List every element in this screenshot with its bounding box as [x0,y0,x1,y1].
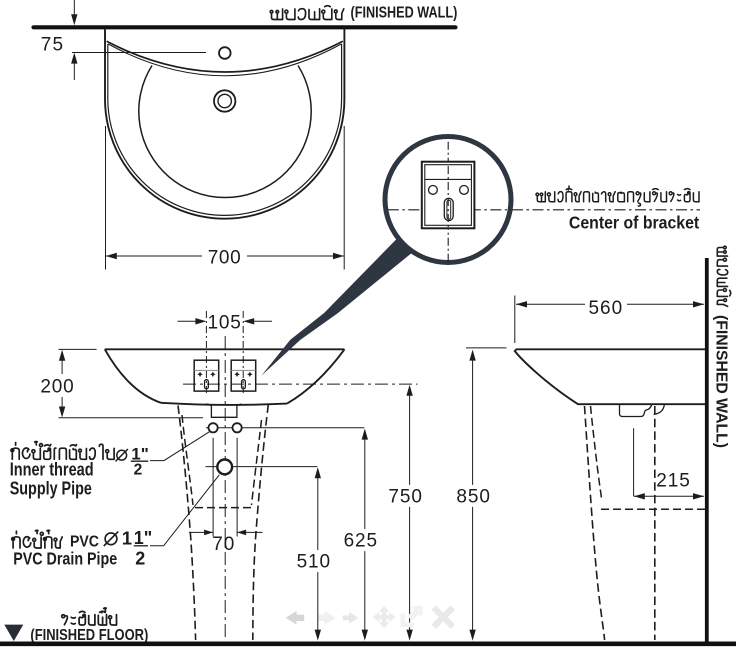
svg-text:(FINISHED FLOOR): (FINISHED FLOOR) [30,627,148,644]
svg-text:2: 2 [134,461,143,478]
svg-text:2: 2 [135,548,145,568]
svg-text:PVC Drain Pipe: PVC Drain Pipe [13,549,117,569]
svg-text:700: 700 [208,247,242,268]
svg-text:Supply Pipe: Supply Pipe [10,479,92,499]
svg-text:215: 215 [656,471,690,492]
svg-text:(FINISHED WALL): (FINISHED WALL) [713,315,730,448]
svg-text:560: 560 [588,298,623,319]
svg-text:70: 70 [212,534,235,555]
svg-text:105: 105 [208,312,242,333]
svg-text:850: 850 [456,486,490,507]
svg-text:1: 1 [122,527,132,548]
svg-text:(FINISHED WALL): (FINISHED WALL) [351,5,458,22]
svg-text:625: 625 [344,531,378,552]
svg-text:200: 200 [40,376,74,397]
svg-text:750: 750 [388,486,422,507]
svg-text:510: 510 [297,552,331,573]
svg-text:Center of bracket: Center of bracket [569,212,699,232]
svg-text:Inner thread: Inner thread [10,459,94,479]
svg-text:75: 75 [41,34,65,55]
